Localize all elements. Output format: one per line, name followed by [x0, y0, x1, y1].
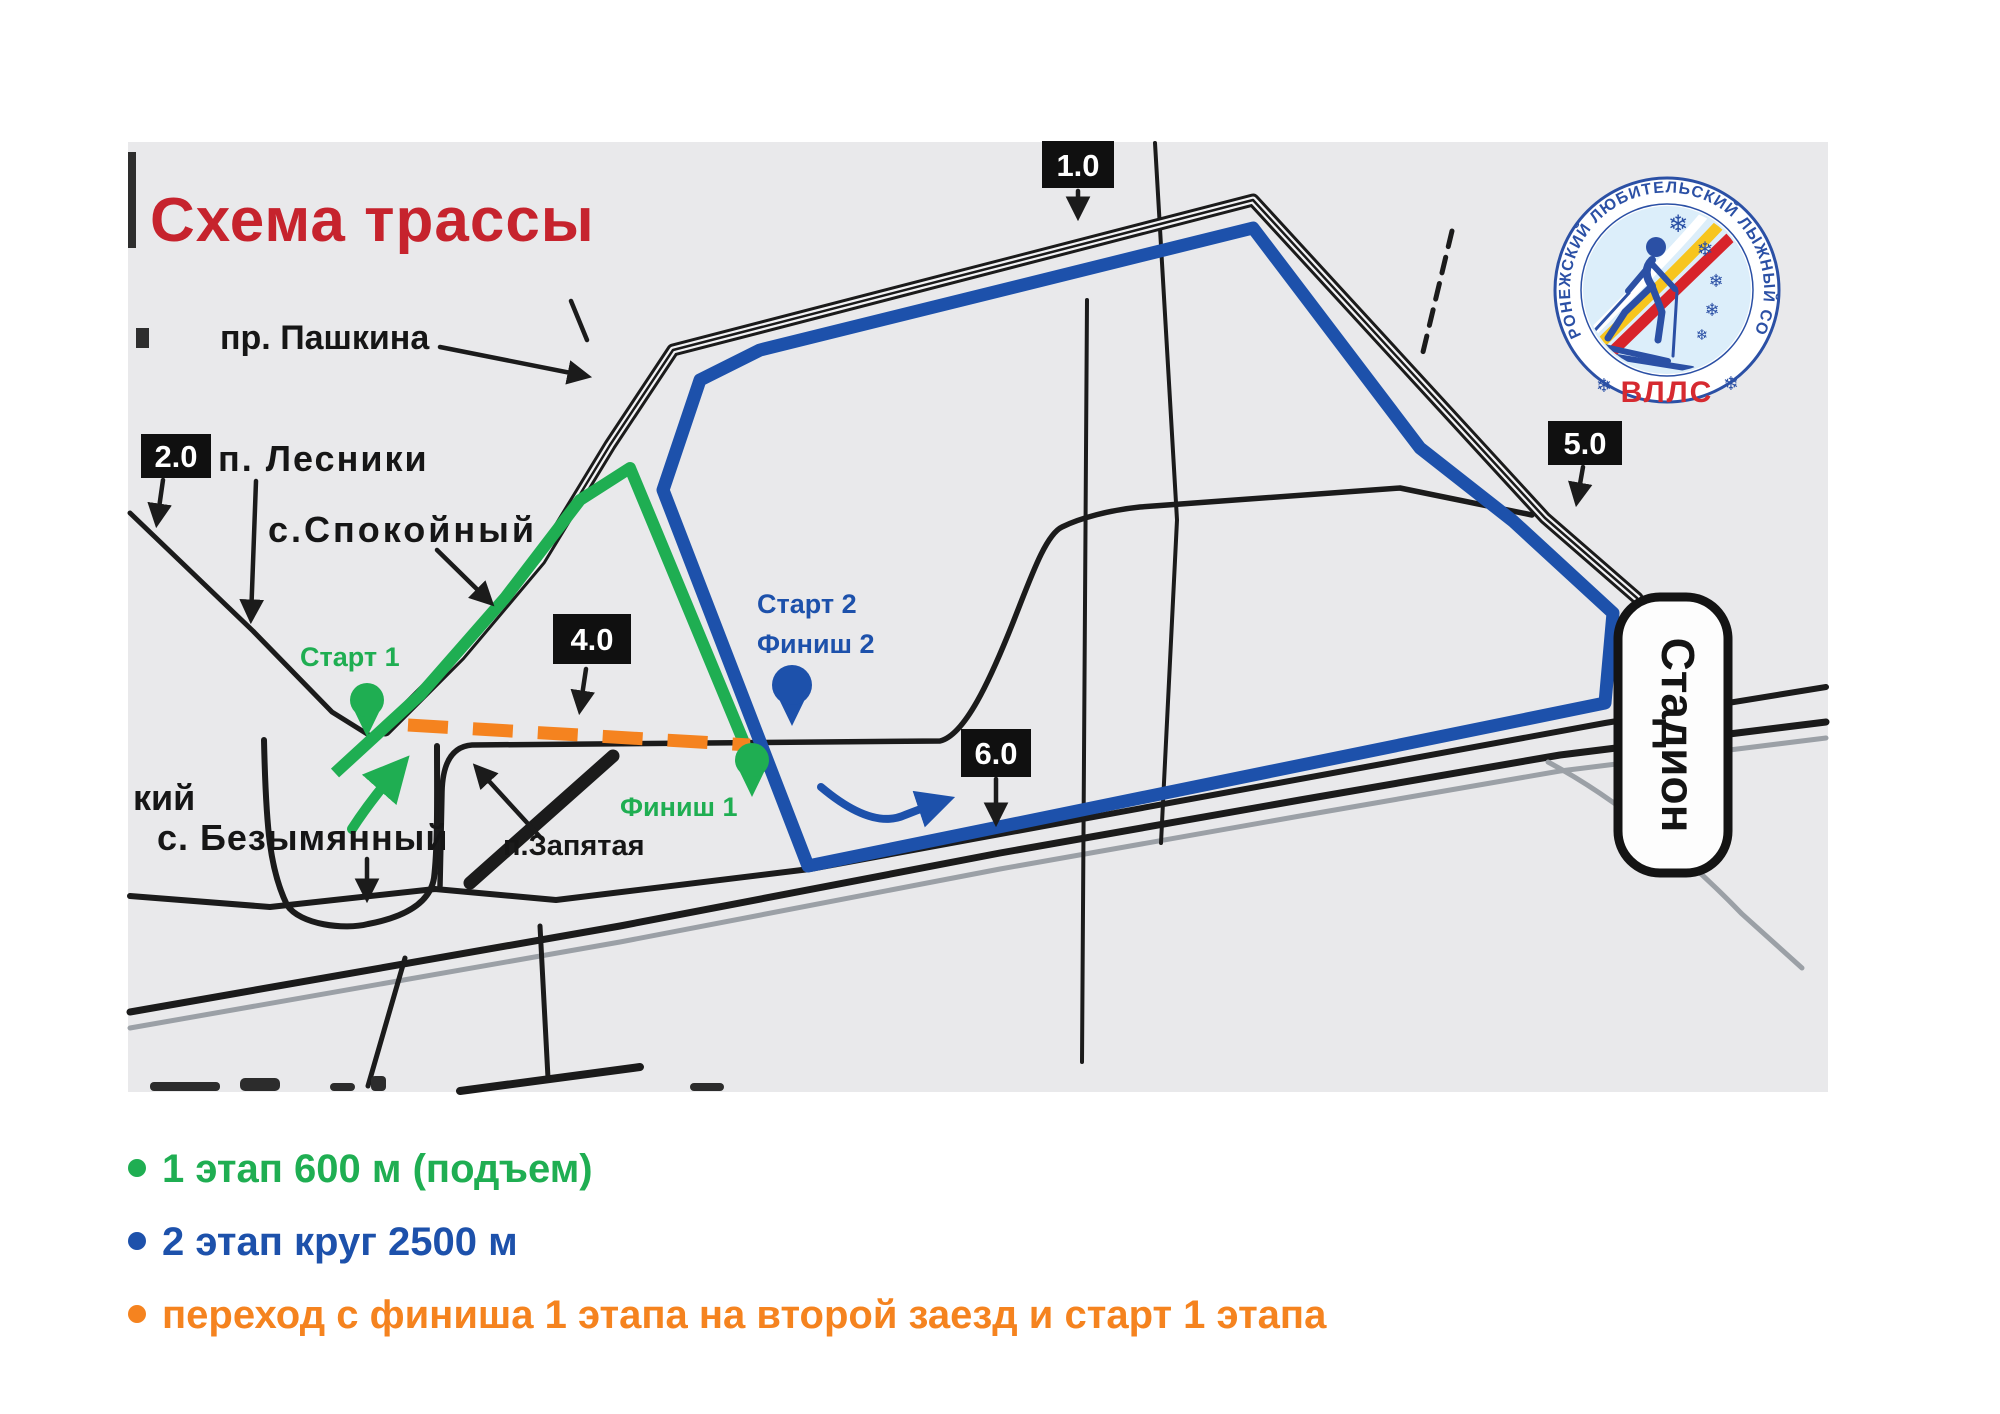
- label-spokoyny: с.Спокойный: [268, 509, 537, 550]
- map-edge-artifact: [128, 152, 136, 248]
- legend-bullet-blue: [128, 1232, 146, 1250]
- badge-5-0-text: 5.0: [1563, 426, 1606, 461]
- label-stadium: Стадион: [1652, 638, 1704, 833]
- badge-4-0-text: 4.0: [570, 622, 613, 657]
- label-lesniki: п. Лесники: [218, 438, 429, 479]
- snowflake-icon: ❄: [1596, 376, 1612, 397]
- snowflake-icon: ❄: [1708, 271, 1723, 291]
- badge-1-0: 1.0: [1042, 141, 1114, 188]
- label-bezymyanny-fragment: кий: [133, 777, 195, 818]
- badge-2-0: 2.0: [141, 434, 211, 478]
- legend-bullet-green: [128, 1159, 146, 1177]
- page-title: Схема трассы: [150, 186, 595, 255]
- snowflake-icon: ❄: [1668, 211, 1688, 238]
- label-finish1: Финиш 1: [620, 792, 738, 822]
- snowflake-icon: ❄: [1723, 374, 1739, 395]
- label-start1: Старт 1: [300, 642, 400, 672]
- legend-item-stage2: 2 этап круг 2500 м: [162, 1220, 518, 1264]
- badge-5-0: 5.0: [1548, 421, 1622, 465]
- course-scheme-poster: 2.0 4.0 1.0 5.0 6.0 пр. Пашкина п. Лесни…: [0, 0, 2000, 1414]
- logo-abbr: ВЛЛС: [1621, 376, 1714, 409]
- snowflake-icon: ❄: [1696, 327, 1709, 344]
- snowflake-icon: ❄: [1704, 300, 1719, 320]
- legend-item-stage1: 1 этап 600 м (подъем): [162, 1147, 593, 1191]
- legend: 1 этап 600 м (подъем) 2 этап круг 2500 м…: [128, 1147, 1327, 1337]
- badge-2-0-text: 2.0: [154, 439, 197, 474]
- label-finish2: Финиш 2: [757, 629, 875, 659]
- label-pashkina: пр. Пашкина: [220, 319, 430, 357]
- badge-1-0-text: 1.0: [1056, 148, 1099, 183]
- stadium-box: Стадион: [1618, 597, 1728, 873]
- badge-6-0: 6.0: [961, 729, 1031, 777]
- course-map-svg: 2.0 4.0 1.0 5.0 6.0 пр. Пашкина п. Лесни…: [0, 0, 2000, 1414]
- snowflake-icon: ❄: [1697, 239, 1714, 261]
- label-bezymyanny: с. Безымянный: [157, 817, 449, 858]
- map-edge-artifact: [136, 328, 149, 348]
- legend-bullet-orange: [128, 1305, 146, 1323]
- badge-4-0: 4.0: [553, 614, 631, 664]
- legend-item-transition: переход с финиша 1 этапа на второй заезд…: [162, 1293, 1327, 1337]
- badge-6-0-text: 6.0: [974, 736, 1017, 771]
- label-start2: Старт 2: [757, 589, 857, 619]
- label-zapyataya: п.Запятая: [503, 830, 645, 862]
